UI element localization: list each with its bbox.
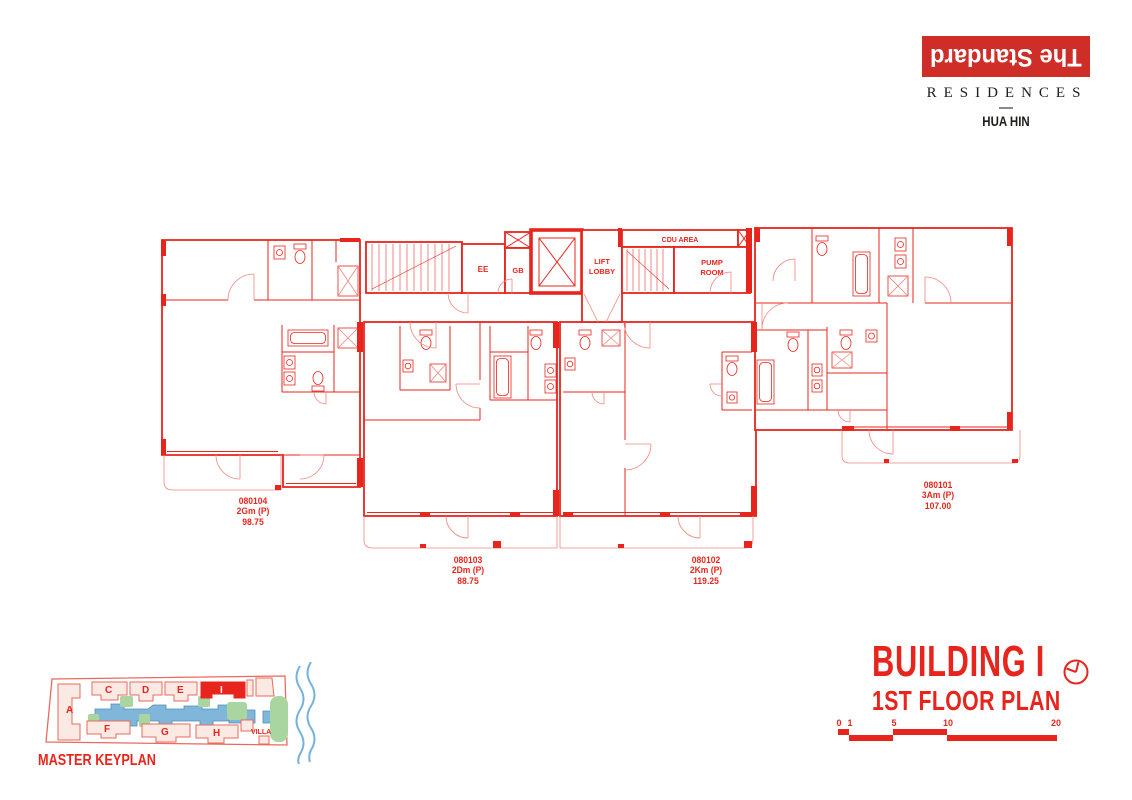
fixture-toilet — [726, 356, 738, 376]
fixture-toilet — [312, 372, 324, 392]
fixture-bathtub — [757, 360, 774, 404]
floor-subtitle: 1ST FLOOR PLAN — [872, 687, 1061, 715]
logo-divider — [999, 107, 1013, 109]
fixture-sink — [274, 246, 285, 259]
fixture-toilet — [530, 330, 542, 350]
scale-tick-3: 10 — [943, 718, 953, 728]
fixture-shower — [832, 352, 852, 368]
scale-bar: 0 1 5 10 20 — [836, 716, 1064, 748]
unit-area: 98.75 — [210, 518, 296, 528]
fixture-bathtub — [494, 356, 511, 398]
keyplan-label-a: A — [66, 705, 73, 716]
fixture-shower — [338, 266, 358, 296]
building-title: BUILDING I — [872, 640, 1045, 684]
scale-tick-4: 20 — [1051, 718, 1061, 728]
room-label-ee: EE — [478, 265, 489, 274]
pump-room-label-2: ROOM — [700, 268, 723, 277]
cdu-area-label: CDU AREA — [662, 237, 699, 244]
fixture-toilet — [816, 236, 828, 256]
fixture-sink — [403, 360, 413, 372]
scale-bar-segments — [838, 729, 1057, 741]
unit-label-080102: 080102 2Km (P) 119.25 — [663, 556, 749, 587]
keyplan-villa-structure — [259, 736, 269, 744]
lift-shaft — [531, 230, 582, 293]
keyplan-small-structure — [256, 678, 274, 696]
lift-lobby-label-2: LOBBY — [589, 267, 615, 276]
fixture-toilet — [420, 330, 432, 350]
pump-room: PUMP ROOM — [674, 247, 750, 293]
fixture-shower — [430, 364, 446, 382]
unit-area: 119.25 — [663, 577, 749, 587]
core: EE GB LIFT LOBBY CDU AREA — [366, 230, 750, 322]
keyplan-small-structure — [247, 680, 253, 696]
scale-tick-1: 1 — [847, 718, 852, 728]
keyplan-title: MASTER KEYPLAN — [38, 752, 156, 770]
unit-label-080101: 080101 3Am (P) 107.00 — [895, 481, 981, 512]
location-label: HUA HIN — [935, 114, 1078, 129]
fixture-shower — [602, 330, 620, 346]
floor-plan-svg: EE GB LIFT LOBBY CDU AREA — [145, 198, 1040, 608]
fixture-toilet — [840, 330, 852, 350]
fixture-toilet — [294, 244, 306, 264]
fixture-sink — [727, 392, 737, 403]
unit-label-080104: 080104 2Gm (P) 98.75 — [210, 497, 296, 528]
keyplan-label-c: C — [105, 685, 112, 696]
scale-tick-0: 0 — [836, 718, 841, 728]
compass-icon — [1062, 658, 1090, 686]
fixture-shower — [338, 328, 358, 348]
room-ee: EE — [462, 244, 505, 293]
keyplan-label-e: E — [177, 685, 184, 696]
keyplan-waves — [297, 662, 315, 764]
fixture-bathtub — [288, 330, 328, 346]
stair-2 — [622, 247, 674, 293]
keyplan-label-i: I — [220, 685, 223, 696]
keyplan-villa-label: VILLA — [251, 729, 271, 736]
logo-box: The Standard — [922, 36, 1090, 77]
logo-text: The Standard — [930, 42, 1082, 71]
unit-area: 88.75 — [425, 577, 511, 587]
lift-lobby: LIFT LOBBY — [582, 230, 622, 322]
fixture-toilet — [787, 332, 799, 352]
scale-tick-2: 5 — [891, 718, 896, 728]
keyplan-label-g: G — [161, 727, 169, 738]
unit-080104 — [162, 240, 360, 490]
fixture-sink — [866, 330, 877, 342]
unit-area: 107.00 — [895, 502, 981, 512]
fixture-toilet — [579, 330, 591, 350]
room-gb: GB — [505, 232, 531, 293]
stair-1 — [366, 242, 462, 293]
fixture-bathtub — [853, 252, 870, 296]
pump-room-label-1: PUMP — [701, 258, 723, 267]
residences-label: RESIDENCES — [922, 85, 1092, 102]
fixture-sink — [565, 358, 575, 370]
keyplan-label-f: F — [104, 724, 110, 735]
fixture-shower — [888, 276, 908, 296]
room-label-gb: GB — [512, 266, 524, 275]
unit-label-080103: 080103 2Dm (P) 88.75 — [425, 556, 511, 587]
lift-lobby-label-1: LIFT — [594, 257, 610, 266]
keyplan-label-h: H — [213, 728, 220, 739]
keyplan-label-d: D — [142, 685, 149, 696]
cdu-area: CDU AREA — [622, 230, 750, 247]
